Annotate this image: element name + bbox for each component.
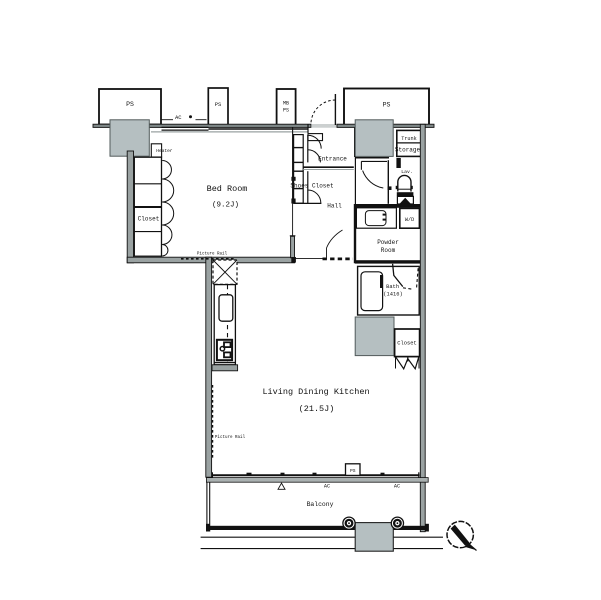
svg-text:AC: AC — [175, 114, 182, 121]
svg-text:Trunk: Trunk — [401, 136, 417, 142]
svg-text:Closet: Closet — [397, 341, 416, 347]
svg-text:Hall: Hall — [327, 203, 342, 210]
svg-text:PS: PS — [126, 101, 134, 108]
svg-text:Picture Rail: Picture Rail — [215, 435, 246, 440]
svg-text:PS: PS — [215, 101, 222, 108]
svg-text:Picture Rail: Picture Rail — [197, 252, 228, 257]
svg-text:Lav.: Lav. — [401, 169, 413, 175]
svg-text:Heater: Heater — [156, 148, 173, 154]
svg-text:Powder: Powder — [377, 239, 399, 246]
svg-text:Storage: Storage — [395, 147, 421, 154]
svg-text:(1416): (1416) — [383, 291, 402, 297]
svg-text:Balcony: Balcony — [307, 501, 334, 508]
svg-text:PS: PS — [383, 102, 391, 109]
svg-text:Living Dining Kitchen: Living Dining Kitchen — [262, 387, 369, 397]
svg-text:AC: AC — [394, 484, 400, 490]
svg-text:MB: MB — [283, 101, 289, 107]
svg-text:Entrance: Entrance — [318, 156, 347, 163]
svg-text:PS: PS — [283, 108, 289, 114]
svg-text:Room: Room — [381, 247, 396, 254]
svg-text:Shoes Closet: Shoes Closet — [290, 182, 333, 189]
svg-text:PS: PS — [350, 468, 356, 474]
svg-text:AC: AC — [324, 484, 330, 490]
svg-text:Bed Room: Bed Room — [207, 184, 248, 194]
svg-text:(9.2J): (9.2J) — [212, 201, 239, 209]
svg-text:W/D: W/D — [405, 217, 414, 223]
svg-text:(21.5J): (21.5J) — [299, 404, 335, 414]
svg-text:Bath: Bath — [386, 284, 399, 290]
svg-text:Closet: Closet — [138, 216, 160, 223]
